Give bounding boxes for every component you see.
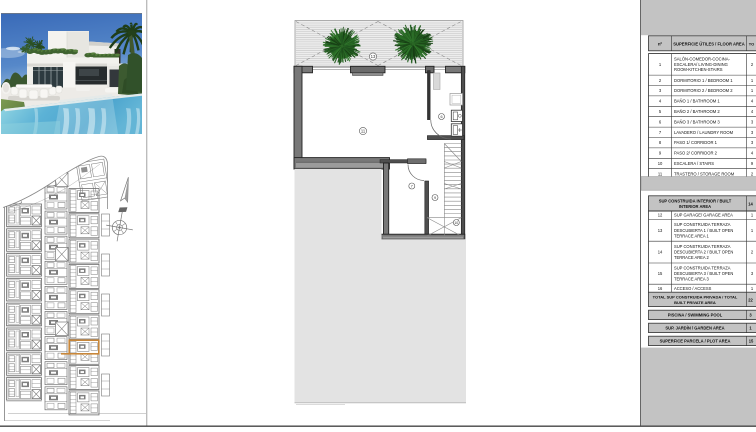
svg-text:6: 6 (659, 119, 662, 124)
svg-text:3: 3 (659, 88, 662, 93)
svg-text:2: 2 (751, 62, 754, 67)
svg-text:1: 1 (751, 78, 754, 83)
svg-text:INTERIOR AREA: INTERIOR AREA (679, 204, 711, 209)
svg-text:1: 1 (659, 62, 662, 67)
svg-text:9: 9 (659, 151, 662, 156)
svg-text:1: 1 (751, 286, 754, 291)
svg-text:15: 15 (658, 271, 663, 276)
svg-text:13: 13 (371, 54, 376, 59)
svg-text:DESCUBIERTA 2 / BUILT OPEN: DESCUBIERTA 2 / BUILT OPEN (674, 250, 733, 255)
svg-text:DESCUBIERTA 3 / BUILT OPEN: DESCUBIERTA 3 / BUILT OPEN (674, 271, 733, 276)
svg-text:2: 2 (751, 250, 754, 255)
svg-text:9: 9 (434, 196, 436, 200)
svg-text:SUP GARAGE/ GARAGE AREA: SUP GARAGE/ GARAGE AREA (674, 213, 733, 218)
svg-text:SUP. JARDÍN / GARDEN AREA: SUP. JARDÍN / GARDEN AREA (665, 325, 724, 330)
svg-text:4: 4 (751, 151, 754, 156)
svg-text:ESCALERA / STAIRS: ESCALERA / STAIRS (674, 161, 714, 166)
svg-text:12: 12 (658, 213, 663, 218)
svg-text:TO: TO (749, 41, 754, 46)
svg-text:2: 2 (751, 171, 754, 176)
svg-text:6: 6 (440, 115, 442, 119)
svg-text:11: 11 (361, 128, 366, 133)
svg-text:16: 16 (658, 286, 663, 291)
svg-text:DESCUBIERTA 1 / BUILT OPEN: DESCUBIERTA 1 / BUILT OPEN (674, 228, 733, 233)
svg-text:4: 4 (659, 99, 662, 104)
svg-text:TERRACE AREA 1: TERRACE AREA 1 (674, 233, 710, 238)
svg-text:TERRACE AREA 2: TERRACE AREA 2 (674, 255, 710, 260)
svg-text:3: 3 (751, 140, 754, 145)
svg-text:4: 4 (751, 109, 754, 114)
svg-text:TRASTERO / STORAGE ROOM: TRASTERO / STORAGE ROOM (674, 171, 735, 176)
svg-text:3: 3 (751, 119, 754, 124)
svg-text:10: 10 (454, 221, 458, 225)
svg-text:22: 22 (748, 298, 753, 303)
svg-text:ESCALERA/ LIVING-DINING: ESCALERA/ LIVING-DINING (674, 62, 728, 67)
svg-text:PASO 1/ CORRIDOR 1: PASO 1/ CORRIDOR 1 (674, 140, 718, 145)
svg-text:SUPERFICE PARCELA / PLOT AREA: SUPERFICE PARCELA / PLOT AREA (660, 338, 731, 343)
svg-text:3: 3 (751, 130, 754, 135)
svg-text:ROOM-KITCHEN-STAIRS: ROOM-KITCHEN-STAIRS (674, 67, 723, 72)
svg-text:1: 1 (751, 228, 754, 233)
svg-text:PISCINA / SWIMMING POOL: PISCINA / SWIMMING POOL (668, 312, 723, 317)
svg-text:14: 14 (748, 201, 753, 206)
svg-text:BUILT PRIVATE AREA: BUILT PRIVATE AREA (674, 300, 716, 305)
svg-text:13: 13 (658, 228, 663, 233)
svg-text:DORMITORIO 2 / BEDROOM 2: DORMITORIO 2 / BEDROOM 2 (674, 88, 733, 93)
svg-text:14: 14 (658, 250, 663, 255)
svg-text:4: 4 (751, 99, 754, 104)
svg-text:1: 1 (751, 213, 754, 218)
svg-text:11: 11 (658, 171, 663, 176)
svg-text:DORMITORIO 1 / BEDROOM 1: DORMITORIO 1 / BEDROOM 1 (674, 78, 733, 83)
svg-text:10: 10 (658, 161, 663, 166)
svg-text:SUP CONSTRUIDA TERRAZA: SUP CONSTRUIDA TERRAZA (674, 222, 731, 227)
svg-text:SUP CONSTRUIDA TERRAZA: SUP CONSTRUIDA TERRAZA (674, 244, 731, 249)
svg-text:BAÑO 3 / BATHROOM 3: BAÑO 3 / BATHROOM 3 (674, 119, 720, 124)
svg-text:ACCESO / ACCESS: ACCESO / ACCESS (674, 286, 712, 291)
svg-text:nº: nº (658, 41, 663, 46)
svg-text:PASO 2/ CORRIDOR 2: PASO 2/ CORRIDOR 2 (674, 151, 718, 156)
svg-text:BAÑO 1 / BATHROOM 1: BAÑO 1 / BATHROOM 1 (674, 99, 720, 104)
svg-text:SUPERFICIE ÚTILES / FLOOR AREA: SUPERFICIE ÚTILES / FLOOR AREA (673, 41, 744, 46)
svg-text:8: 8 (659, 140, 662, 145)
svg-text:TERRACE AREA 3: TERRACE AREA 3 (674, 277, 710, 282)
svg-text:5: 5 (659, 109, 662, 114)
svg-text:SUP CONSTRUIDA INTERIOR / BUIL: SUP CONSTRUIDA INTERIOR / BUILT (659, 198, 732, 203)
svg-text:9: 9 (751, 161, 754, 166)
svg-text:1: 1 (751, 88, 754, 93)
svg-text:15: 15 (749, 338, 754, 343)
svg-text:7: 7 (411, 184, 413, 188)
svg-text:7: 7 (659, 130, 662, 135)
svg-text:SUP CONSTRUIDA TERRAZA: SUP CONSTRUIDA TERRAZA (674, 265, 731, 270)
svg-text:SALÓN-COMEDOR-COCINA-: SALÓN-COMEDOR-COCINA- (674, 56, 731, 61)
svg-text:LAVADERO / LAUNDRY ROOM: LAVADERO / LAUNDRY ROOM (674, 130, 734, 135)
svg-text:BAÑO 2 / BATHROOM 2: BAÑO 2 / BATHROOM 2 (674, 109, 720, 114)
svg-text:3: 3 (751, 271, 754, 276)
svg-text:TOTAL SUP CONSTRUIDA PRIVADA /: TOTAL SUP CONSTRUIDA PRIVADA / TOTAL (653, 295, 738, 300)
svg-text:2: 2 (659, 78, 662, 83)
